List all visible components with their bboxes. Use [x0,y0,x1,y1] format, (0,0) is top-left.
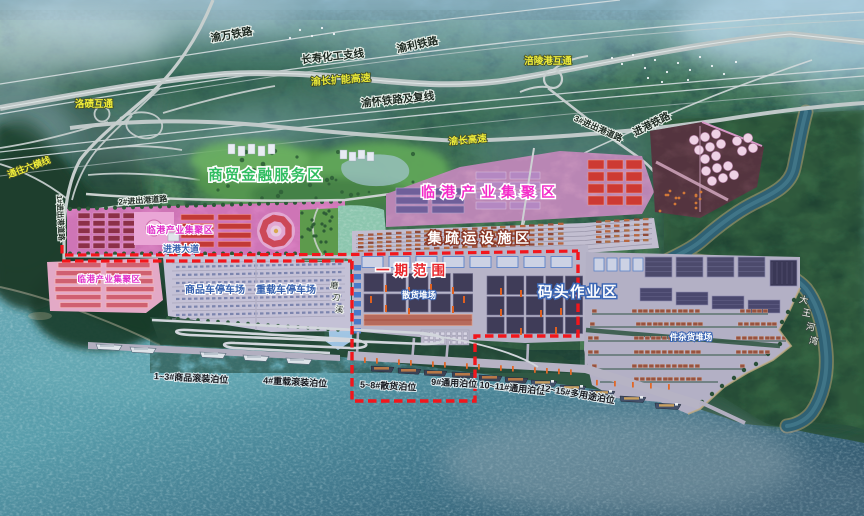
svg-text:一期范围: 一期范围 [376,262,450,278]
svg-text:溪: 溪 [335,304,344,315]
svg-text:码头作业区: 码头作业区 [538,283,618,301]
svg-text:临港产业集聚区: 临港产业集聚区 [77,274,140,284]
svg-text:临港产业集聚区: 临港产业集聚区 [147,224,214,235]
svg-text:散货堆场: 散货堆场 [402,290,437,300]
svg-text:重载车停车场: 重载车停车场 [256,283,316,296]
svg-text:集疏运设施区: 集疏运设施区 [427,230,533,246]
svg-text:进港大道: 进港大道 [163,243,199,254]
svg-text:件杂货堆场: 件杂货堆场 [670,332,713,342]
svg-text:临港产业集聚区: 临港产业集聚区 [421,184,561,200]
svg-text:洛碛互通: 洛碛互通 [75,98,114,110]
svg-text:刀: 刀 [332,293,341,303]
svg-text:商品车停车场: 商品车停车场 [185,283,245,296]
svg-text:商贸金融服务区: 商贸金融服务区 [208,166,324,184]
svg-text:磨: 磨 [330,280,339,291]
svg-text:涪陵港互通: 涪陵港互通 [524,55,572,67]
